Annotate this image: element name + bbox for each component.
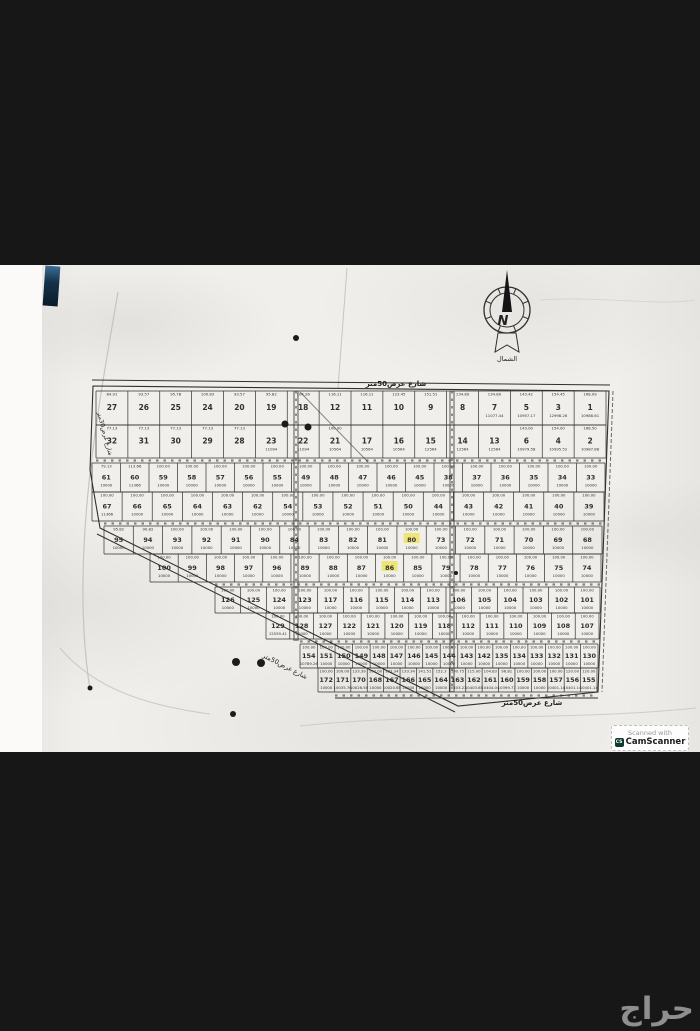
camscanner-icon: CS (615, 738, 624, 747)
scanned-document[interactable] (0, 265, 700, 752)
badge-title-row: CS CamScanner (615, 738, 686, 747)
badge-title: CamScanner (626, 738, 686, 747)
haraj-watermark: حراج (619, 991, 694, 1027)
paper-margin (0, 265, 42, 752)
badge-subtitle: Scanned with (628, 730, 672, 737)
blue-ink-patch (43, 266, 61, 307)
screen: N الشمال 2784.912693.572595.7824100.8320… (0, 0, 700, 1031)
camscanner-badge: Scanned with CS CamScanner (611, 725, 689, 751)
